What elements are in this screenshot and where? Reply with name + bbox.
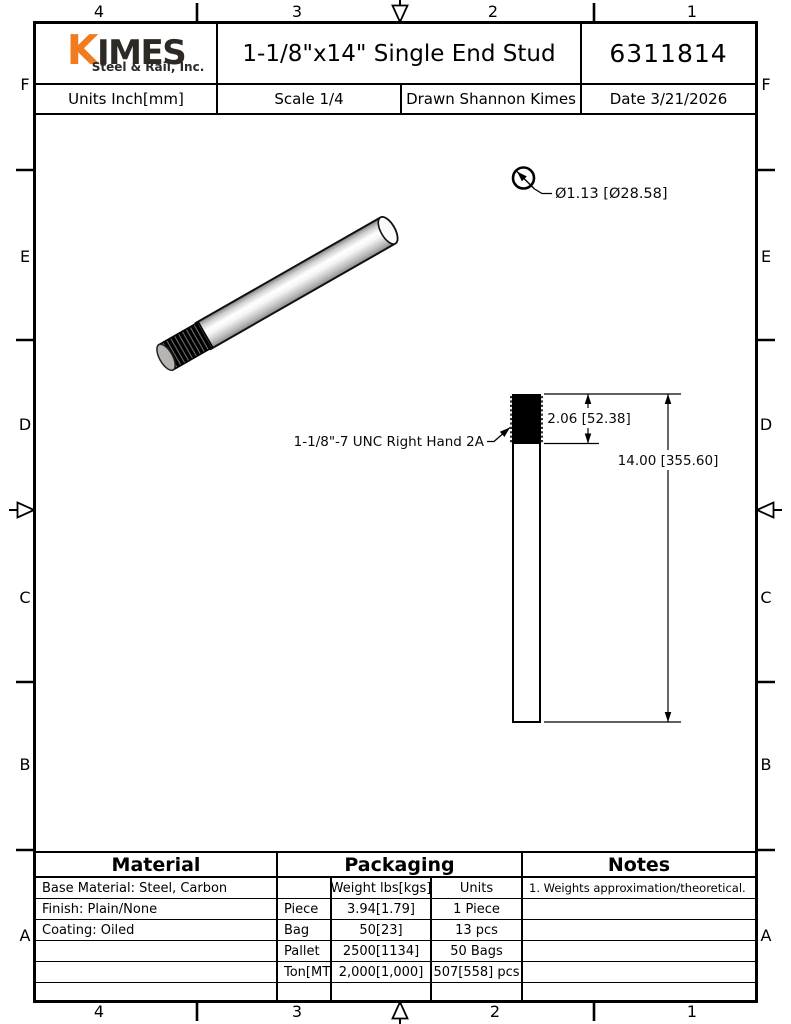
title-block-row2: Units Inch[mm] Scale 1/4 Drawn Shannon K… [36,85,755,115]
center-arrow-right [757,503,782,518]
drawn-by-field: Drawn Shannon Kimes [402,85,582,113]
packaging-units-cell: 1 Piece [432,899,523,920]
part-number: 6311814 [582,24,755,83]
packaging-weight-cell [332,983,432,1001]
units-field: Units Inch[mm] [36,85,218,113]
zone-left-b: B [20,757,31,773]
zone-bottom-2: 2 [490,1004,500,1020]
zone-bottom-4: 4 [94,1004,104,1020]
center-arrow-bottom [393,1002,408,1024]
packaging-label-cell: Ton[MT] [278,962,332,983]
zone-right-a: A [761,928,772,944]
drawing-sheet: 4 3 2 1 4 3 2 1 F E D C B A F E D C B A … [0,0,791,1024]
center-arrow-left [9,503,34,518]
zone-left-f: F [20,77,29,93]
zone-top-2: 2 [488,4,498,20]
material-row: Coating: Oiled [36,920,278,941]
center-arrow-top [393,0,408,22]
packaging-label-cell [278,878,332,899]
packaging-label-cell: Pallet [278,941,332,962]
packaging-table-header: Packaging [278,853,523,878]
notes-row [523,941,755,962]
packaging-weight-cell: 3.94[1.79] [332,899,432,920]
zone-bottom-3: 3 [292,1004,302,1020]
zone-top-1: 1 [687,4,697,20]
zone-left-a: A [20,928,31,944]
zone-right-e: E [761,249,771,265]
zone-right-f: F [761,77,770,93]
packaging-label-cell [278,983,332,1001]
title-block: KIMES Steel & Rail, Inc. 1-1/8"x14" Sing… [36,24,755,115]
packaging-units-cell [432,983,523,1001]
zone-top-4: 4 [94,4,104,20]
notes-row [523,962,755,983]
drawing-title: 1-1/8"x14" Single End Stud [218,24,582,83]
material-row: Base Material: Steel, Carbon [36,878,278,899]
kimes-logo: KIMES Steel & Rail, Inc. [36,24,218,83]
zone-right-c: C [760,590,771,606]
packaging-label-cell: Bag [278,920,332,941]
scale-field: Scale 1/4 [218,85,402,113]
zone-left-d: D [19,417,31,433]
material-table-header: Material [36,853,278,878]
date-field: Date 3/21/2026 [582,85,755,113]
zone-right-d: D [760,417,772,433]
logo-subtitle: Steel & Rail, Inc. [92,60,205,74]
zone-left-c: C [19,590,30,606]
packaging-weight-cell: 50[23] [332,920,432,941]
zone-bottom-1: 1 [687,1004,697,1020]
material-row [36,962,278,983]
material-row: Finish: Plain/None [36,899,278,920]
packaging-weight-header: Weight lbs[kgs] [332,878,432,899]
material-row [36,983,278,1001]
packaging-units-cell: 507[558] pcs [432,962,523,983]
notes-row [523,983,755,1001]
packaging-label-cell: Piece [278,899,332,920]
info-tables: Material Packaging Notes Base Material: … [36,851,755,1001]
title-block-row1: KIMES Steel & Rail, Inc. 1-1/8"x14" Sing… [36,24,755,85]
material-row [36,941,278,962]
zone-top-3: 3 [292,4,302,20]
notes-row [523,899,755,920]
packaging-weight-cell: 2,000[1,000] [332,962,432,983]
packaging-units-cell: 50 Bags [432,941,523,962]
zone-right-b: B [761,757,772,773]
packaging-units-header: Units [432,878,523,899]
notes-row [523,920,755,941]
packaging-units-cell: 13 pcs [432,920,523,941]
zone-left-e: E [20,249,30,265]
notes-row: 1. Weights approximation/theoretical. [523,878,755,899]
notes-table-header: Notes [523,853,755,878]
packaging-weight-cell: 2500[1134] [332,941,432,962]
